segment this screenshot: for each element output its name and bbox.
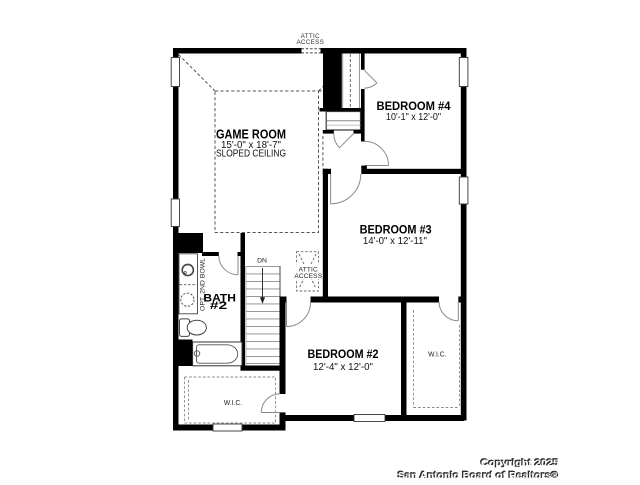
svg-text:BEDROOM #3: BEDROOM #3	[360, 222, 432, 236]
svg-text:ACCESS: ACCESS	[294, 273, 322, 280]
svg-text:#2: #2	[210, 300, 228, 312]
svg-text:DN: DN	[257, 258, 267, 265]
svg-text:12'-4" x 12'-0": 12'-4" x 12'-0"	[313, 362, 374, 373]
svg-text:San Antonio Board of Realtors®: San Antonio Board of Realtors®	[398, 470, 559, 480]
svg-text:BEDROOM #2: BEDROOM #2	[308, 347, 379, 361]
svg-text:W.I.C.: W.I.C.	[428, 352, 446, 359]
svg-text:SLOPED CEILING: SLOPED CEILING	[216, 149, 286, 160]
svg-text:14'-0" x 12'-11": 14'-0" x 12'-11"	[363, 236, 428, 247]
svg-text:10'-1" x 12'-0": 10'-1" x 12'-0"	[386, 112, 441, 123]
svg-text:W.I.C.: W.I.C.	[224, 400, 242, 407]
svg-text:Copyright 2025: Copyright 2025	[481, 458, 560, 469]
svg-text:ACCESS: ACCESS	[296, 39, 324, 46]
